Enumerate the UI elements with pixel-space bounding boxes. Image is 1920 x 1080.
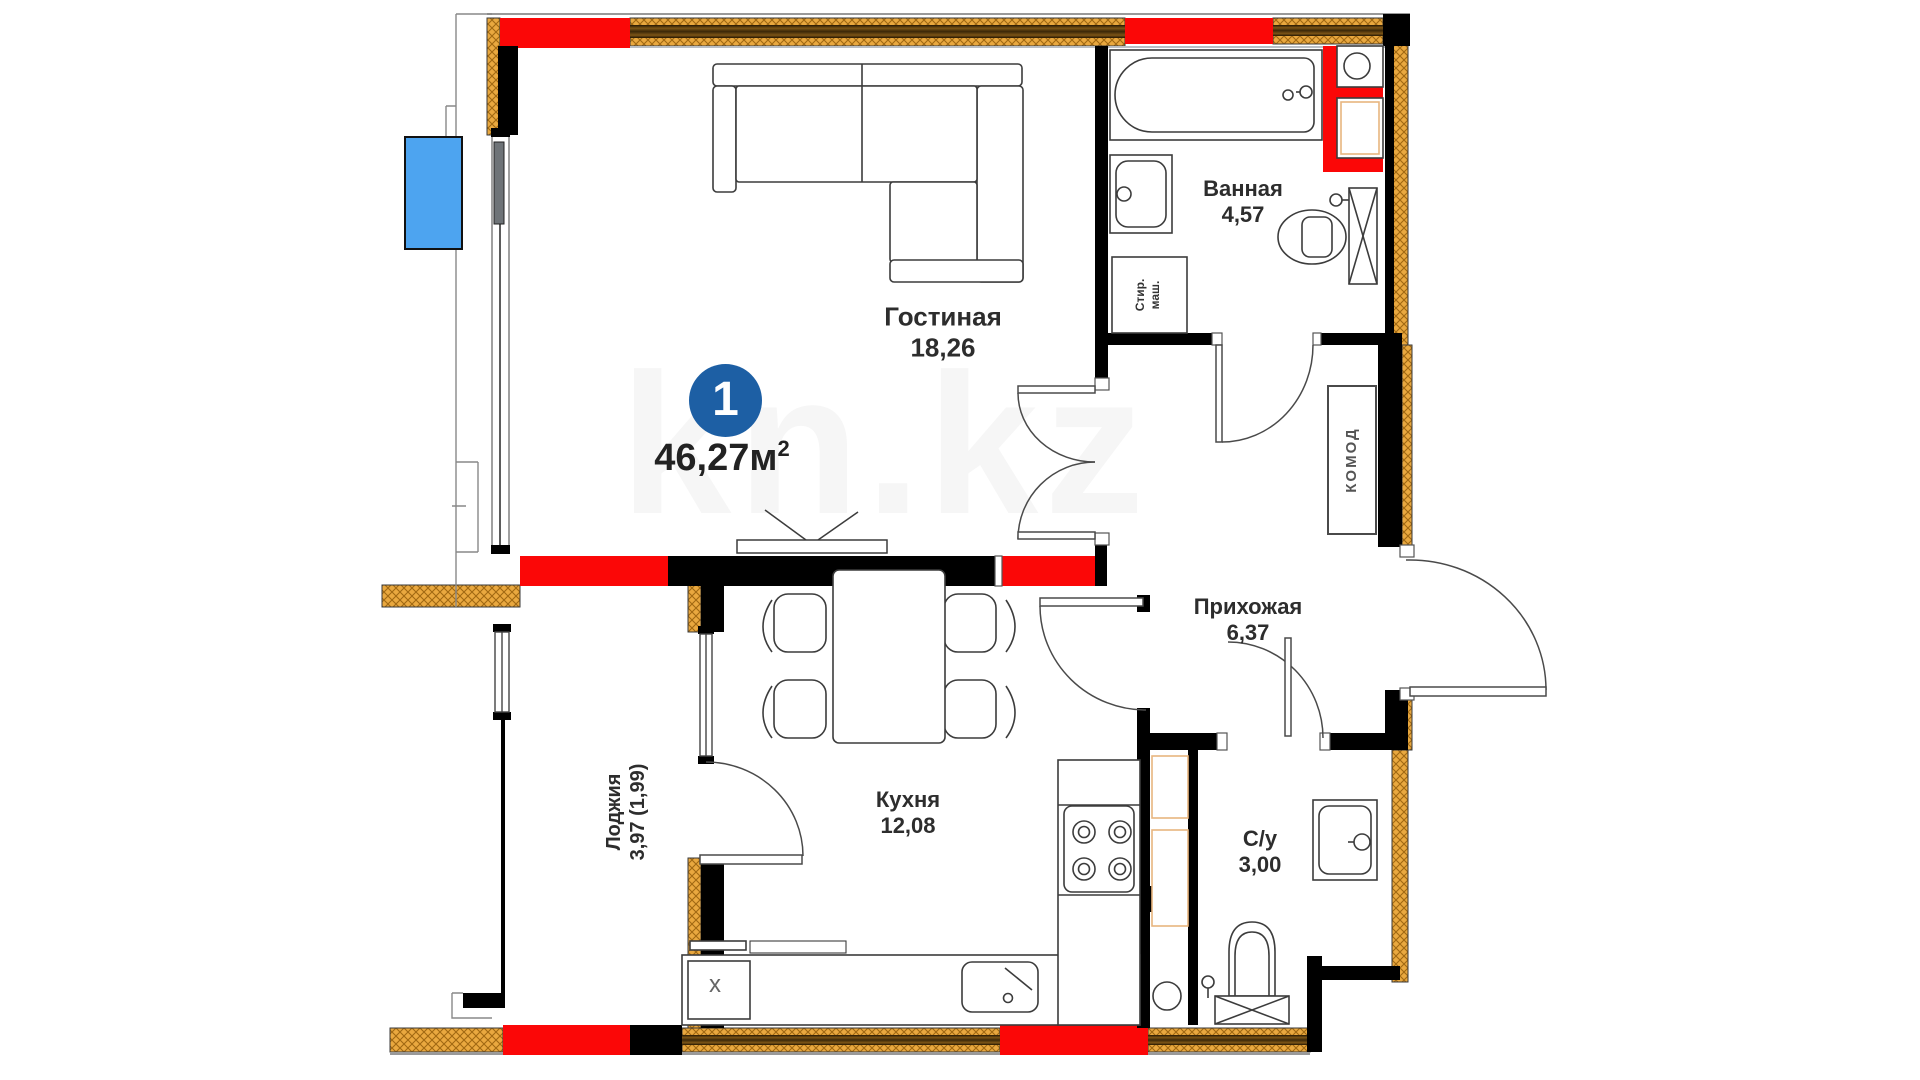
room-label-wc: С/у 3,00 — [1239, 826, 1282, 878]
room-name: Кухня — [876, 787, 940, 812]
tv-unit — [737, 510, 887, 553]
dresser-label: КОМОД — [1343, 427, 1361, 492]
entrance-door — [1406, 560, 1546, 696]
double-door-living-hall — [1018, 386, 1095, 539]
unit-number-badge: 1 — [689, 364, 762, 437]
washing-machine-label: Стир. маш. — [1133, 279, 1163, 312]
room-name: Прихожая — [1194, 594, 1303, 619]
room-area: 3,97 (1,99) — [627, 764, 649, 861]
room-label-bathroom: Ванная 4,57 — [1203, 176, 1283, 228]
bathroom-door — [1216, 345, 1313, 442]
hall-shaft — [1152, 756, 1188, 1010]
kitchen-unit-mark: х — [709, 971, 721, 999]
room-name: Лоджия — [603, 774, 625, 851]
blue-window-slab — [405, 137, 462, 249]
area-value: 46,27м — [654, 437, 777, 479]
washer-line1: Стир. — [1133, 279, 1147, 312]
vent-fan — [1344, 53, 1370, 79]
area-sup: 2 — [777, 436, 789, 461]
kitchen-door — [1040, 598, 1146, 710]
room-area: 6,37 — [1194, 620, 1303, 646]
room-area: 4,57 — [1203, 202, 1283, 228]
floor-plan-canvas: kn.kz — [0, 0, 1920, 1080]
room-name: Гостиная — [884, 301, 1002, 331]
room-area: 18,26 — [884, 332, 1002, 363]
room-label-loggia: Лоджия 3,97 (1,99) — [602, 764, 650, 861]
loggia-glazing — [495, 632, 712, 756]
room-area: 12,08 — [876, 813, 940, 839]
room-area: 3,00 — [1239, 852, 1282, 878]
room-name: Ванная — [1203, 176, 1283, 201]
room-label-kitchen: Кухня 12,08 — [876, 787, 940, 839]
dining-set — [763, 570, 1015, 743]
wc-fixtures — [1202, 800, 1377, 1024]
washer-line2: маш. — [1148, 281, 1162, 310]
wc-door — [1228, 638, 1323, 738]
living-window — [491, 128, 510, 554]
loggia-door — [700, 762, 803, 864]
room-label-living: Гостиная 18,26 — [884, 301, 1002, 362]
corner-sofa — [713, 64, 1023, 282]
floor-plan-drawing — [0, 0, 1920, 1080]
room-name: С/у — [1243, 826, 1277, 851]
room-label-hallway: Прихожая 6,37 — [1194, 594, 1303, 646]
total-area-label: 46,27м2 — [654, 436, 789, 480]
